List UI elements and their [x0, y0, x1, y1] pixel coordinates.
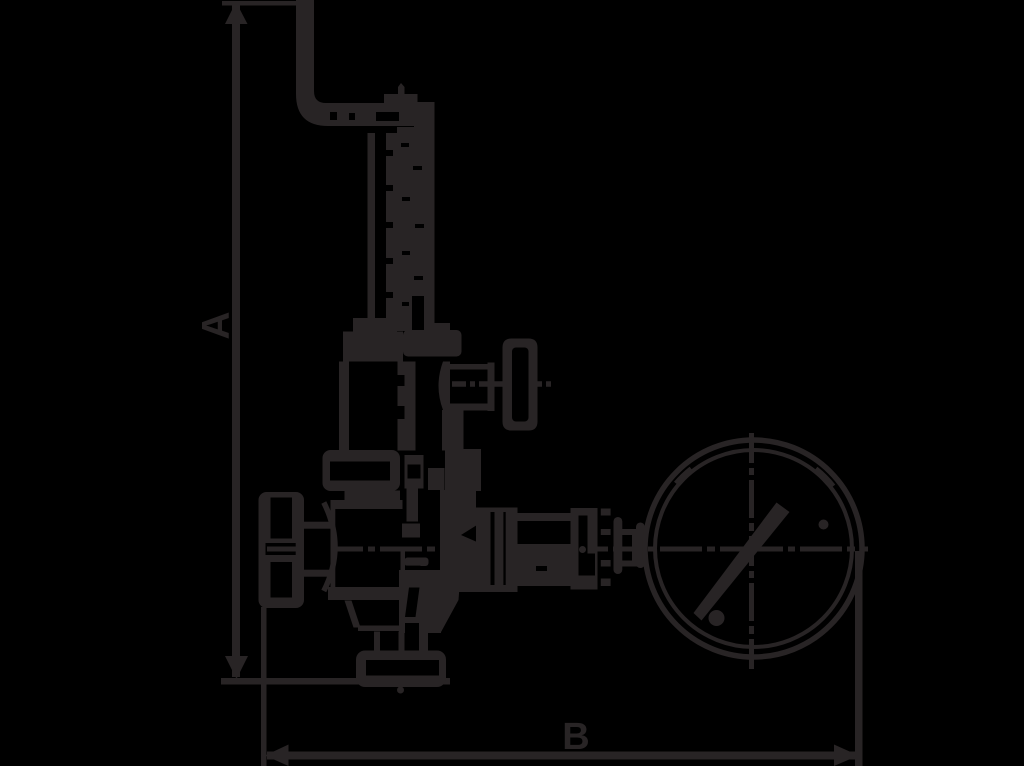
svg-text:B: B: [562, 716, 589, 758]
svg-text:A: A: [195, 311, 238, 339]
